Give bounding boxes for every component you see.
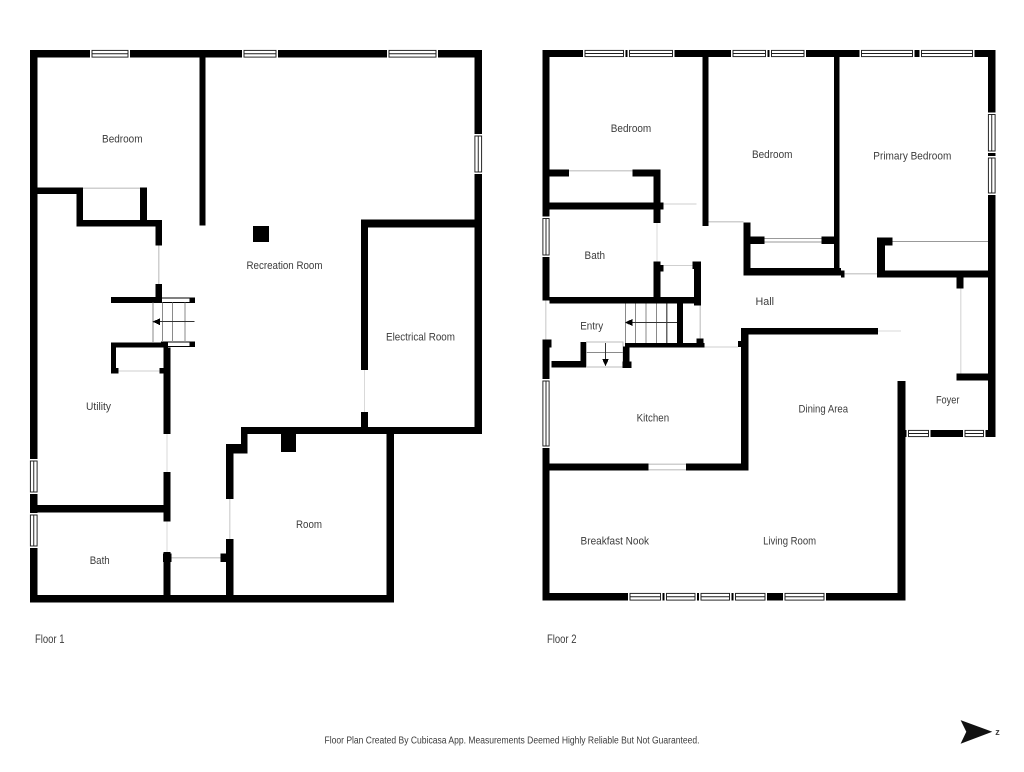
svg-text:Floor 2: Floor 2 xyxy=(547,632,577,646)
svg-text:Floor Plan Created By Cubicasa: Floor Plan Created By Cubicasa App. Meas… xyxy=(325,736,700,747)
svg-text:Hall: Hall xyxy=(756,296,775,308)
svg-text:Bedroom: Bedroom xyxy=(752,149,793,161)
svg-text:Kitchen: Kitchen xyxy=(637,413,670,425)
svg-text:Dining Area: Dining Area xyxy=(799,404,849,416)
svg-text:Electrical Room: Electrical Room xyxy=(386,331,455,343)
svg-text:Room: Room xyxy=(296,519,322,531)
svg-text:Recreation Room: Recreation Room xyxy=(247,260,323,272)
svg-text:Entry: Entry xyxy=(580,321,603,333)
svg-text:Bedroom: Bedroom xyxy=(102,134,143,146)
svg-text:Bath: Bath xyxy=(90,555,110,567)
svg-text:Floor 1: Floor 1 xyxy=(35,632,65,646)
svg-text:z: z xyxy=(995,727,1000,737)
svg-text:Utility: Utility xyxy=(86,401,111,413)
svg-text:Breakfast Nook: Breakfast Nook xyxy=(581,535,650,547)
svg-text:Primary Bedroom: Primary Bedroom xyxy=(873,151,951,163)
svg-text:Bedroom: Bedroom xyxy=(611,123,652,135)
svg-text:Foyer: Foyer xyxy=(936,395,960,407)
svg-text:Living Room: Living Room xyxy=(763,535,816,547)
svg-text:Bath: Bath xyxy=(585,250,606,262)
